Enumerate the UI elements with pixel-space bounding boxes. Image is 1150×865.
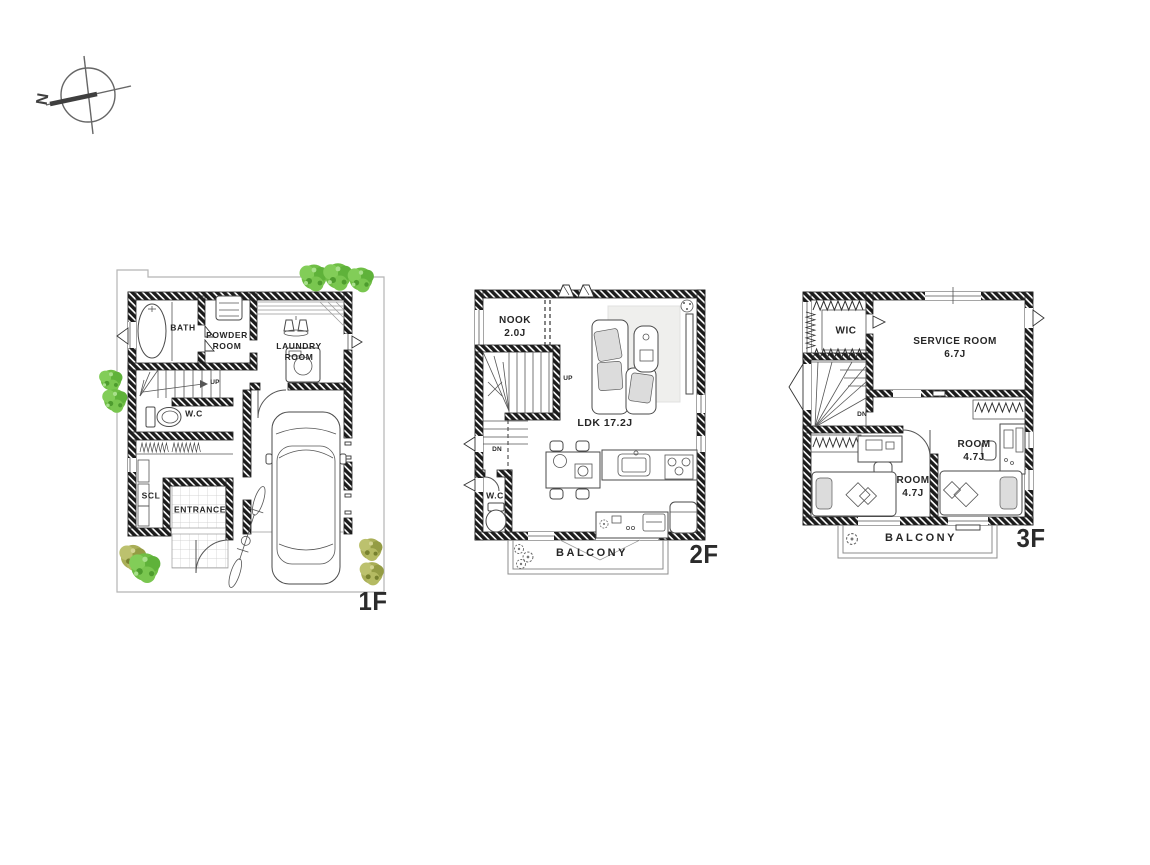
room-label-bath: BATH xyxy=(170,322,195,333)
wc-door-icon xyxy=(485,477,499,491)
room-label-wic: WIC xyxy=(836,325,857,338)
closet-hanger-icon xyxy=(136,443,233,454)
room-label-powder-room: POWDER ROOM xyxy=(206,330,248,352)
room-label-entrance: ENTRANCE xyxy=(174,504,226,515)
tree-icon xyxy=(102,389,127,413)
floor-label-2f: 2F xyxy=(689,538,718,572)
floorplan-drawing xyxy=(0,0,1150,865)
room-label-balcony-2f: BALCONY xyxy=(556,546,628,560)
drying-rack-icon xyxy=(284,316,308,336)
floor-label-3f: 3F xyxy=(1016,522,1045,556)
stairs-label-dn-3f: DN xyxy=(857,411,867,419)
dining-table-icon xyxy=(546,441,600,499)
tree-icon xyxy=(360,562,384,585)
tree-icon xyxy=(359,538,382,561)
stairs-label-dn-2f: DN xyxy=(492,446,502,454)
car-icon xyxy=(266,412,346,584)
closet-hanger-icon xyxy=(811,435,861,452)
room-label-room-a: ROOM 4.7J xyxy=(896,474,929,500)
stairs-2f-icon xyxy=(483,352,549,444)
stairs-label-up-1f: UP xyxy=(210,379,219,387)
island-counter-icon xyxy=(596,512,668,538)
tree-icon xyxy=(300,265,329,292)
vent-icon xyxy=(558,285,574,297)
floor-1f-plan xyxy=(99,263,384,592)
bathtub-icon xyxy=(138,302,172,361)
toilet-icon xyxy=(146,407,181,427)
compass-icon xyxy=(46,56,131,134)
room-label-scl: SCL xyxy=(142,490,161,501)
kitchen-counter-icon xyxy=(602,450,697,480)
room-label-service-room: SERVICE ROOM 6.7J xyxy=(913,335,997,361)
floor-3f-plan xyxy=(789,287,1044,558)
vanity-cabinet-icon xyxy=(216,296,242,320)
vent-icon xyxy=(578,285,594,297)
room-label-laundry-room: LAUNDRY ROOM xyxy=(276,341,321,363)
closet-hanger-icon xyxy=(973,400,1025,419)
desk-icon xyxy=(858,436,902,475)
room-label-nook: NOOK 2.0J xyxy=(499,314,531,340)
stairs-1f-icon xyxy=(140,370,220,398)
room-label-wc-1f: W.C xyxy=(185,408,203,419)
stairs-3f-icon xyxy=(811,362,866,430)
room-label-room-b: ROOM 4.7J xyxy=(957,438,990,464)
fridge-icon xyxy=(670,502,697,533)
floor-label-1f: 1F xyxy=(358,585,387,619)
toilet-icon xyxy=(486,503,506,532)
room-label-wc-2f: W.C xyxy=(486,490,504,501)
coffee-table-icon xyxy=(634,326,658,372)
room-label-ldk: LDK 17.2J xyxy=(577,417,632,431)
room-label-balcony-3f: BALCONY xyxy=(885,531,957,545)
hall-door-icon xyxy=(903,430,930,457)
tree-icon xyxy=(129,553,160,583)
floorplan-sheet: N BATH POWDER ROOM LAUNDRY ROOM UP W.C S… xyxy=(0,0,1150,865)
tree-icon xyxy=(348,268,374,293)
tree-icon xyxy=(99,370,122,392)
tv-icon xyxy=(686,314,693,394)
plant-icon xyxy=(681,300,693,312)
bed-icon xyxy=(812,472,896,516)
stairs-label-up-2f: UP xyxy=(563,375,572,383)
bed-icon xyxy=(940,471,1022,515)
